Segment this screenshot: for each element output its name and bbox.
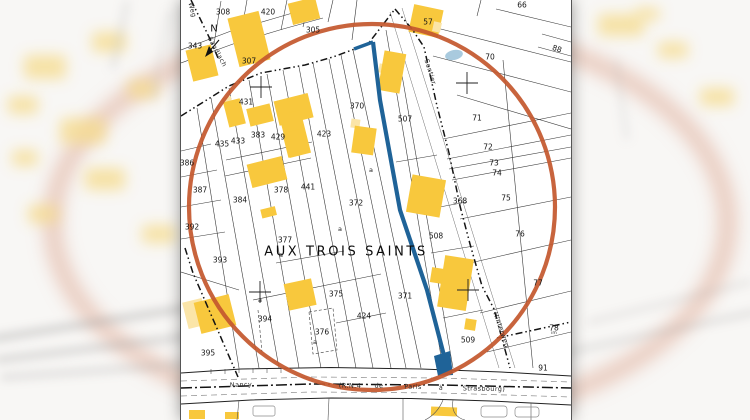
street-label: Strasbourg) — [463, 385, 506, 392]
street-label: de — [374, 383, 383, 390]
cadastral-map-panel: 3084203055766708834330743143543338342942… — [180, 0, 572, 420]
street-label: (R.N.4 — [339, 383, 361, 390]
parcel-number-label: 387 — [193, 186, 207, 194]
parcel-number-label: 70 — [485, 53, 495, 61]
parcel-number-label: 375 — [329, 290, 343, 298]
parcel-number-label: 307 — [242, 57, 256, 65]
parcel-number-label: 370 — [350, 102, 364, 110]
parcel-number-label: 423 — [317, 130, 331, 138]
parcel-number-label: 508 — [429, 232, 443, 240]
parcel-number-label: 74 — [492, 169, 502, 177]
screenshot-root: 3084203055766708834330743143543338342942… — [0, 0, 750, 420]
parcel-number-label: 377 — [278, 236, 292, 244]
street-label: Weg — [187, 2, 197, 19]
parcel-number-label: 429 — [271, 133, 285, 141]
parcel-number-label: 393 — [213, 256, 227, 264]
parcel-number-label: 509 — [461, 336, 475, 344]
parcel-number-label: 305 — [306, 26, 320, 34]
street-label: Sentier — [423, 59, 437, 86]
parcel-letter-label: a — [369, 167, 373, 174]
parcel-number-label: 392 — [185, 223, 199, 231]
parcel-number-label: 431 — [239, 98, 253, 106]
street-label: à — [439, 385, 444, 392]
street-label: Hinterweg — [492, 311, 510, 348]
parcel-number-label: 75 — [501, 194, 511, 202]
street-label: Nancy — [230, 381, 253, 388]
parcel-number-label: 383 — [251, 131, 265, 139]
parcel-number-label: 441 — [301, 183, 315, 191]
lieu-dit-title: AUX TROIS SAINTS — [264, 245, 428, 260]
labels-layer: 3084203055766708834330743143543338342942… — [181, 0, 571, 420]
parcel-number-label: 57 — [423, 18, 433, 26]
parcel-number-label: 72 — [483, 143, 493, 151]
street-label: Paris — [404, 384, 422, 391]
parcel-number-label: 372 — [349, 199, 363, 207]
tiny-label: im — [551, 332, 557, 337]
parcel-number-label: 343 — [188, 42, 202, 50]
parcel-number-label: 368 — [453, 197, 467, 205]
parcel-number-label: 394 — [258, 315, 272, 323]
parcel-number-label: 371 — [398, 292, 412, 300]
parcel-number-label: 88 — [551, 44, 562, 54]
parcel-number-label: 435 — [215, 140, 229, 148]
parcel-number-label: 395 — [201, 349, 215, 357]
parcel-number-label: 433 — [231, 137, 245, 145]
parcel-number-label: 66 — [517, 1, 527, 9]
parcel-letter-label: a — [313, 339, 317, 346]
parcel-number-label: 384 — [233, 196, 247, 204]
parcel-number-label: 507 — [398, 115, 412, 123]
parcel-number-label: 73 — [489, 159, 499, 167]
parcel-letter-label: a — [338, 226, 342, 233]
parcel-number-label: 308 — [216, 8, 230, 16]
street-label: Sandlach — [206, 36, 227, 68]
parcel-number-label: 376 — [315, 328, 329, 336]
parcel-number-label: 77 — [533, 279, 543, 287]
parcel-letter-label: a — [258, 297, 262, 304]
north-label: N — [210, 24, 217, 35]
parcel-number-label: 76 — [515, 230, 525, 238]
parcel-number-label: 91 — [538, 364, 548, 372]
parcel-number-label: 420 — [261, 8, 275, 16]
parcel-number-label: 71 — [472, 114, 482, 122]
parcel-number-label: 386 — [180, 159, 194, 167]
parcel-number-label: 378 — [274, 186, 288, 194]
parcel-number-label: 424 — [357, 312, 371, 320]
